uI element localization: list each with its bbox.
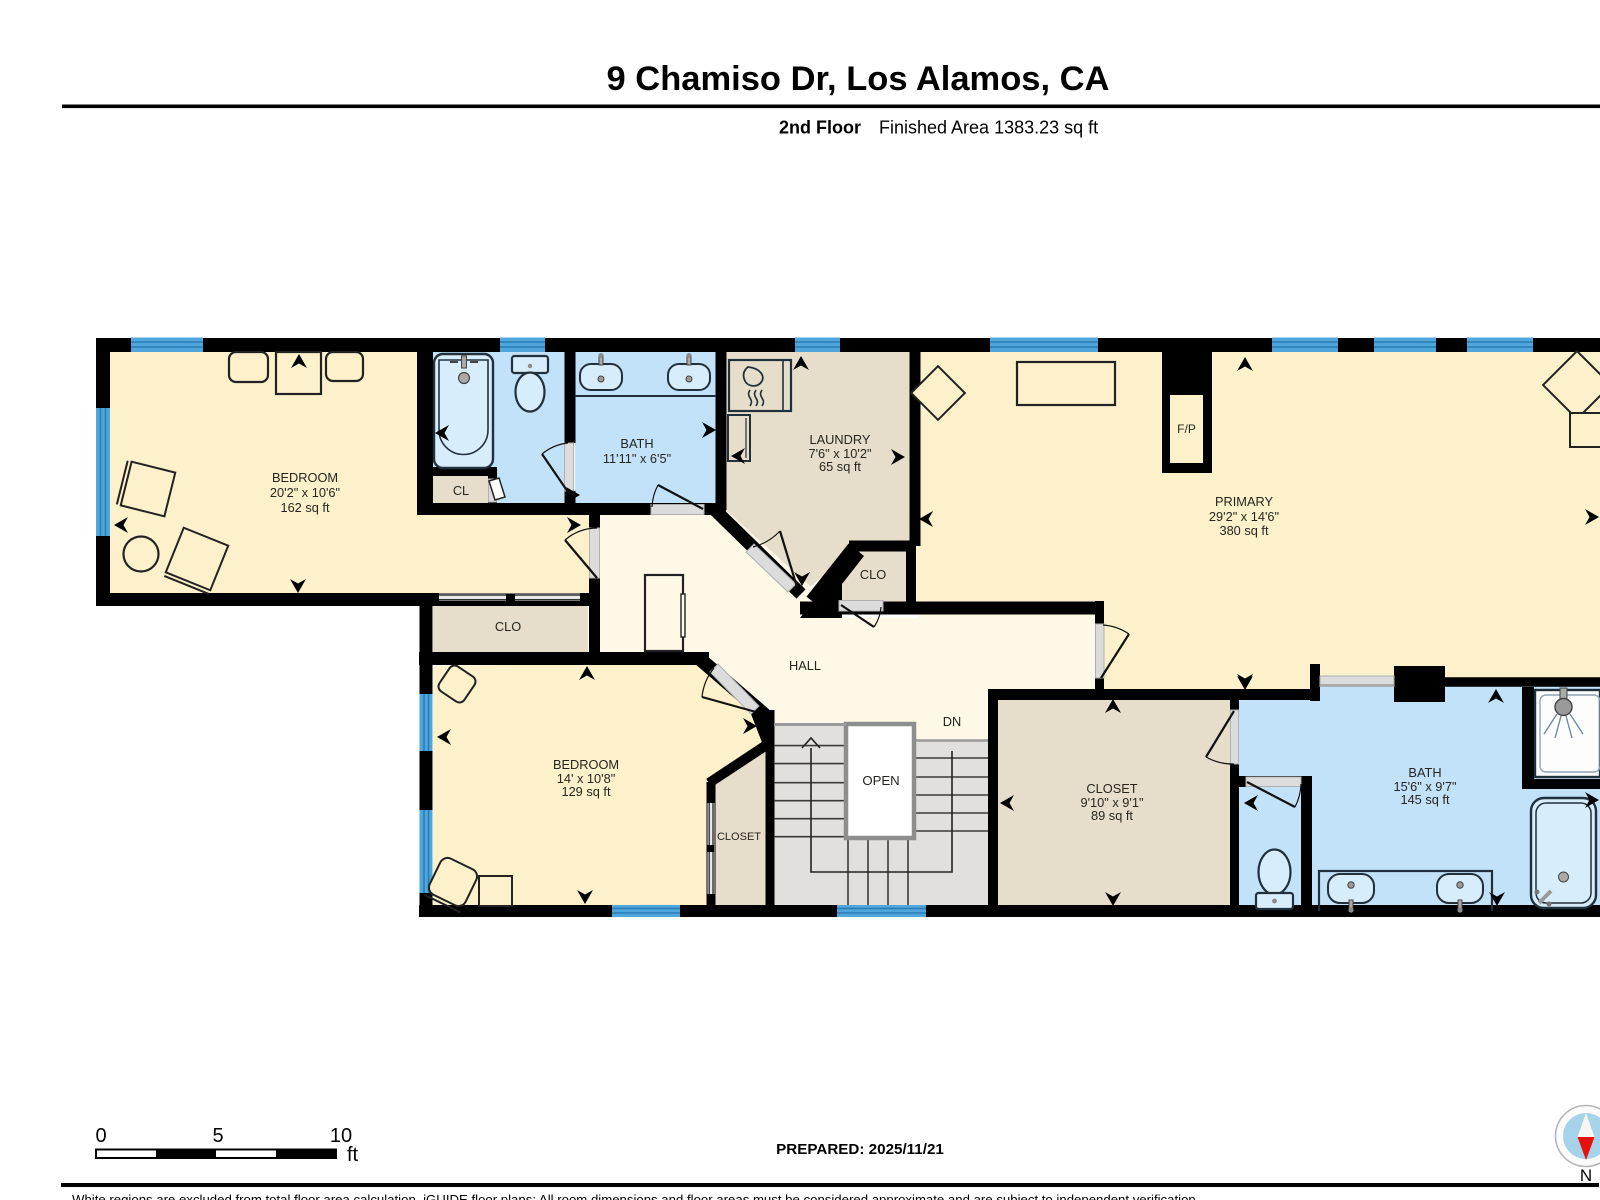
svg-text:BATH: BATH [1408,765,1441,780]
svg-text:129 sq ft: 129 sq ft [561,784,611,799]
svg-text:BATH: BATH [620,436,653,451]
svg-text:162 sq ft: 162 sq ft [280,500,330,515]
svg-text:9 Chamiso Dr, Los Alamos, CA: 9 Chamiso Dr, Los Alamos, CA [607,60,1110,98]
svg-text:Finished Area 1383.23 sq ft: Finished Area 1383.23 sq ft [879,118,1098,138]
svg-text:11'11" x 6'5": 11'11" x 6'5" [603,451,671,466]
svg-text:5: 5 [212,1125,223,1147]
svg-text:29'2" x 14'6": 29'2" x 14'6" [1209,509,1279,524]
svg-text:PREPARED: 2025/11/21: PREPARED: 2025/11/21 [776,1141,944,1158]
svg-text:BEDROOM: BEDROOM [553,757,619,772]
svg-text:HALL: HALL [789,658,821,673]
svg-text:OPEN: OPEN [862,773,899,788]
svg-text:CLOSET: CLOSET [717,831,761,843]
svg-text:ft: ft [347,1144,359,1166]
svg-text:380 sq ft: 380 sq ft [1219,523,1269,538]
svg-text:CL: CL [453,483,469,498]
svg-text:65 sq ft: 65 sq ft [819,459,861,474]
svg-text:145 sq ft: 145 sq ft [1400,792,1450,807]
svg-text:CLO: CLO [495,619,521,634]
svg-text:0: 0 [95,1125,106,1147]
svg-text:White regions are excluded fro: White regions are excluded from total fl… [72,1192,1199,1200]
svg-text:2nd Floor: 2nd Floor [779,118,861,138]
svg-text:PRIMARY: PRIMARY [1215,494,1274,509]
svg-text:BEDROOM: BEDROOM [272,470,338,485]
svg-text:20'2" x 10'6": 20'2" x 10'6" [270,485,340,500]
svg-text:DN: DN [943,714,961,729]
svg-text:F/P: F/P [1177,422,1196,436]
svg-text:LAUNDRY: LAUNDRY [810,432,871,447]
svg-text:CLO: CLO [860,567,886,582]
svg-text:CLOSET: CLOSET [1086,781,1137,796]
svg-text:N: N [1580,1166,1592,1185]
svg-text:89 sq ft: 89 sq ft [1091,808,1133,823]
